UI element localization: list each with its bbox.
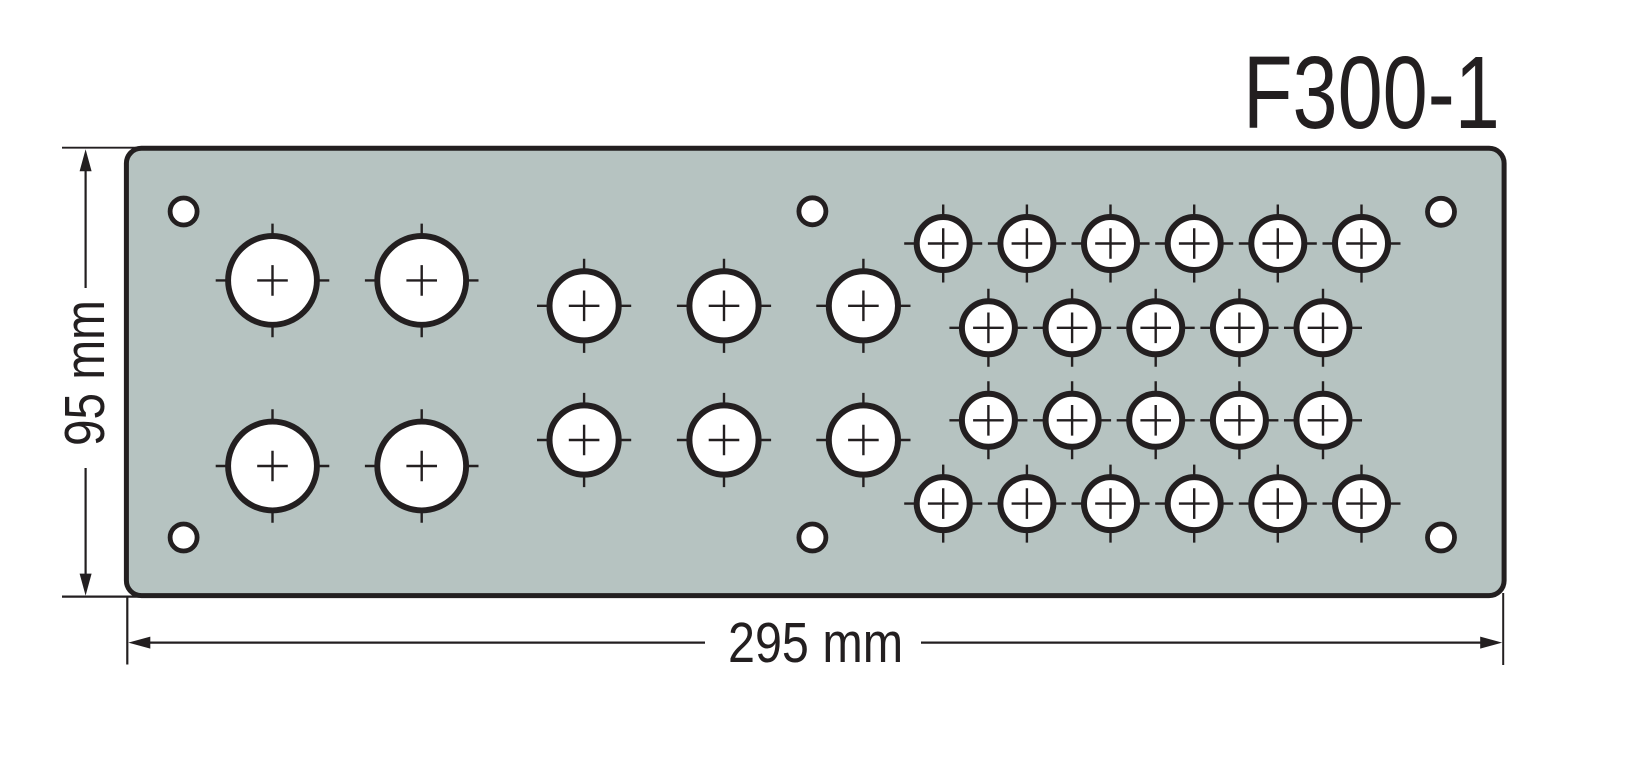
svg-text:295 mm: 295 mm	[728, 611, 903, 675]
svg-text:F300-1: F300-1	[1243, 35, 1500, 151]
svg-text:95 mm: 95 mm	[53, 300, 117, 446]
